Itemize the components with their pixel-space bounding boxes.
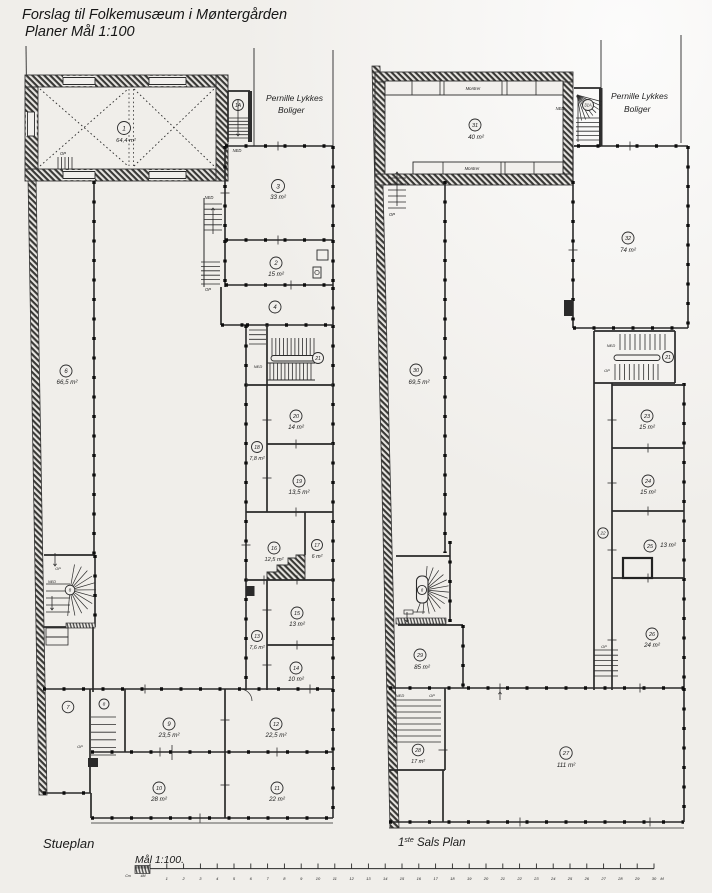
svg-text:64,4 m²: 64,4 m²: [116, 138, 137, 144]
svg-text:13 m²: 13 m²: [660, 542, 677, 549]
svg-text:66,5 m²: 66,5 m²: [57, 379, 79, 386]
svg-text:21: 21: [314, 356, 321, 362]
svg-text:20: 20: [292, 414, 300, 420]
svg-text:Pernille Lykkes: Pernille Lykkes: [611, 91, 669, 101]
svg-text:NED: NED: [396, 693, 405, 698]
svg-text:17: 17: [433, 876, 438, 881]
svg-text:40 m²: 40 m²: [468, 134, 485, 141]
svg-text:28: 28: [617, 876, 623, 881]
svg-text:OP: OP: [77, 744, 83, 749]
svg-text:10: 10: [156, 786, 163, 792]
svg-text:69,5 m²: 69,5 m²: [409, 379, 431, 386]
svg-text:17 m²: 17 m²: [411, 759, 425, 765]
svg-text:11: 11: [274, 786, 280, 792]
svg-text:7,6 m²: 7,6 m²: [249, 645, 264, 651]
svg-text:30: 30: [652, 876, 657, 881]
svg-text:22 m²: 22 m²: [268, 796, 286, 803]
svg-text:NED: NED: [48, 580, 56, 584]
svg-text:7,8 m²: 7,8 m²: [249, 456, 264, 462]
svg-text:30: 30: [413, 368, 420, 374]
svg-text:OP: OP: [604, 368, 610, 373]
svg-text:1: 1: [166, 876, 168, 881]
svg-text:Forslag til Folkemusæum i Mønt: Forslag til Folkemusæum i Møntergården: [22, 7, 287, 23]
svg-text:32: 32: [625, 236, 631, 242]
svg-text:26: 26: [648, 632, 656, 638]
svg-text:28: 28: [414, 748, 421, 754]
svg-text:10 m²: 10 m²: [288, 676, 305, 683]
svg-text:22: 22: [599, 531, 606, 536]
svg-text:18: 18: [254, 445, 260, 451]
svg-text:13: 13: [254, 634, 260, 640]
svg-text:15: 15: [294, 611, 301, 617]
svg-text:6 m²: 6 m²: [312, 554, 323, 560]
svg-text:26: 26: [584, 876, 590, 881]
svg-text:12: 12: [273, 722, 279, 728]
svg-text:12,5 m²: 12,5 m²: [265, 557, 285, 563]
svg-text:74 m²: 74 m²: [620, 247, 637, 254]
svg-text:OP: OP: [60, 151, 66, 156]
svg-text:15 m²: 15 m²: [639, 424, 656, 431]
svg-text:Montrer: Montrer: [465, 166, 480, 171]
svg-text:OP: OP: [205, 287, 211, 292]
svg-text:22,5 m²: 22,5 m²: [265, 732, 288, 739]
svg-text:10: 10: [316, 876, 321, 881]
svg-text:8: 8: [103, 702, 106, 707]
svg-text:33 m²: 33 m²: [270, 194, 287, 201]
svg-text:22: 22: [516, 876, 522, 881]
svg-text:OP: OP: [429, 693, 435, 698]
svg-text:Mål 1:100.: Mål 1:100.: [135, 854, 184, 866]
svg-text:23: 23: [533, 876, 539, 881]
svg-text:21: 21: [500, 876, 505, 881]
svg-text:19: 19: [467, 876, 472, 881]
svg-text:24 m²: 24 m²: [643, 642, 661, 649]
svg-text:16: 16: [417, 876, 422, 881]
svg-text:14: 14: [383, 876, 388, 881]
svg-text:31A: 31A: [584, 103, 592, 108]
svg-text:20: 20: [483, 876, 489, 881]
svg-text:Pernille Lykkes: Pernille Lykkes: [266, 93, 324, 103]
svg-text:NED: NED: [233, 148, 242, 153]
svg-text:Stueplan: Stueplan: [43, 836, 94, 851]
svg-text:Planer Mål 1:100: Planer Mål 1:100: [25, 24, 135, 40]
svg-text:15: 15: [400, 876, 405, 881]
svg-text:NED: NED: [556, 106, 565, 111]
svg-text:Cm: Cm: [125, 874, 131, 878]
svg-text:OP: OP: [55, 567, 61, 571]
svg-text:29: 29: [416, 653, 423, 659]
svg-text:14 m²: 14 m²: [288, 424, 305, 431]
svg-text:11: 11: [333, 876, 337, 881]
svg-text:111 m²: 111 m²: [557, 762, 576, 769]
svg-text:13: 13: [366, 876, 371, 881]
svg-text:14: 14: [293, 666, 299, 672]
svg-text:Boliger: Boliger: [624, 104, 652, 114]
svg-text:NED: NED: [205, 195, 214, 200]
svg-text:15 m²: 15 m²: [640, 489, 657, 496]
svg-text:29: 29: [634, 876, 640, 881]
svg-text:25: 25: [567, 876, 573, 881]
svg-text:OP: OP: [389, 212, 395, 217]
svg-text:NED: NED: [254, 364, 263, 369]
svg-text:3: 3: [276, 183, 280, 190]
svg-text:24: 24: [644, 479, 651, 485]
svg-text:12: 12: [349, 876, 354, 881]
svg-text:16: 16: [271, 546, 278, 552]
svg-text:21: 21: [664, 355, 671, 361]
svg-text:Boliger: Boliger: [278, 105, 306, 115]
svg-text:13,5 m²: 13,5 m²: [289, 489, 311, 496]
svg-text:23,5 m²: 23,5 m²: [158, 732, 181, 739]
svg-text:27: 27: [562, 751, 570, 757]
svg-text:24: 24: [550, 876, 556, 881]
svg-text:19: 19: [296, 479, 302, 485]
svg-text:31: 31: [472, 123, 478, 129]
svg-text:18: 18: [450, 876, 455, 881]
svg-text:15 m²: 15 m²: [268, 271, 285, 278]
svg-text:4M: 4M: [141, 874, 146, 878]
svg-text:28 m²: 28 m²: [150, 796, 168, 803]
svg-text:13 m²: 13 m²: [289, 621, 306, 628]
svg-text:NED: NED: [607, 343, 616, 348]
svg-text:25: 25: [646, 544, 654, 550]
svg-text:1: 1: [122, 125, 126, 132]
svg-text:2: 2: [273, 261, 278, 267]
svg-text:17: 17: [314, 543, 320, 549]
svg-text:85 m²: 85 m²: [414, 664, 431, 671]
svg-text:27: 27: [600, 876, 606, 881]
svg-text:23: 23: [643, 414, 651, 420]
svg-text:Montrer: Montrer: [466, 86, 481, 91]
svg-text:OP: OP: [601, 644, 607, 649]
